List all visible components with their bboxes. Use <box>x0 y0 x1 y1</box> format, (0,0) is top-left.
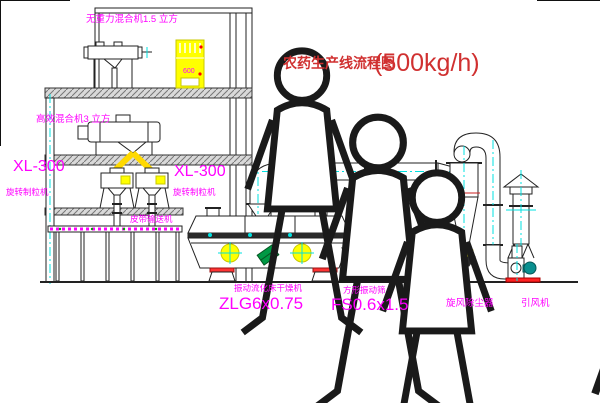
fan-base <box>506 278 540 282</box>
dryer-spring-foot-left <box>209 268 235 281</box>
belt-conveyor <box>48 226 182 281</box>
control-cabinet-1: 600 <box>176 40 204 88</box>
label-dryer-name: 振动流化床干燥机 <box>234 283 303 293</box>
label-cyclone: 旋风除尘器 <box>446 297 494 309</box>
cad-flow-diagram-canvas: 600 <box>0 0 600 403</box>
label-screen-name: 方形振动筛 <box>343 285 386 295</box>
label-granulator-left-model: XL-300 <box>13 158 65 175</box>
label-dryer-model: ZLG6x0.75 <box>219 294 303 313</box>
indicator-light <box>198 72 201 75</box>
gravity-free-mixer-top <box>84 42 152 88</box>
fan-housing <box>508 258 524 278</box>
label-granulator-left-name: 旋转制粒机 <box>6 187 49 197</box>
label-granulator-right-model: XL-300 <box>174 163 226 180</box>
roof-beam <box>95 8 252 13</box>
label-mixer-top: 无重力混合机1.5 立方 <box>86 13 178 25</box>
label-fan: 引风机 <box>521 297 550 309</box>
vortex-finder <box>454 146 470 162</box>
process-flow-diagram: 600 <box>0 0 600 403</box>
worker-ground <box>589 241 600 403</box>
induced-draft-fan <box>486 244 540 282</box>
diagram-title-capacity: (500kg/h) <box>374 49 480 77</box>
label-belt-conveyor: 皮带输送机 <box>130 214 173 224</box>
fan-motor <box>524 262 536 274</box>
indicator-light <box>199 45 202 48</box>
label-mixer-mid: 高效混合机3 立方 <box>36 113 110 125</box>
label-screen-model: FS0.6x1.5 <box>331 295 409 314</box>
floor-slab-top <box>45 88 252 98</box>
rotary-granulator-left <box>100 168 134 226</box>
label-granulator-right-name: 旋转制粒机 <box>173 187 216 197</box>
cabinet1-panel-text: 600 <box>183 68 195 75</box>
